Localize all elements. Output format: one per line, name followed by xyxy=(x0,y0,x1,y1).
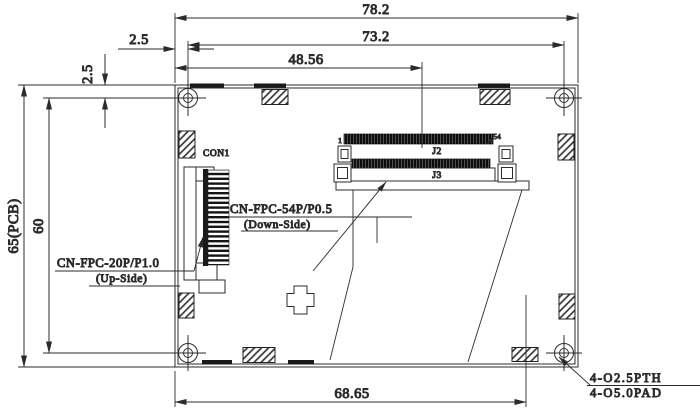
pad-right-lower xyxy=(559,294,575,319)
pad-left-lower xyxy=(179,293,194,318)
dim-pcb-height-value: 65(PCB) xyxy=(6,198,22,253)
drawing-canvas: CON1 J2 1 54 J3 xyxy=(0,0,700,410)
dim-inner-width xyxy=(188,41,564,90)
fpc20-side-label: (Up-Side) xyxy=(96,273,147,285)
pcb-outline xyxy=(175,85,578,367)
hole-note-line2: 4-O5.0PAD xyxy=(590,386,662,400)
j3-label: J3 xyxy=(432,171,441,181)
j2-pin1-label: 1 xyxy=(338,136,342,145)
fpc20-label: CN-FPC-20P/P1.0 xyxy=(57,256,159,270)
fpc54-side-label: (Down-Side) xyxy=(244,219,311,231)
pcb-mechanical-drawing: CON1 J2 1 54 J3 xyxy=(0,0,700,410)
fpc54-label: CN-FPC-54P/P0.5 xyxy=(230,202,332,216)
dim-inner-width-value: 73.2 xyxy=(362,29,389,45)
j2-label: J2 xyxy=(432,147,441,157)
pad-bottom-right xyxy=(512,348,538,362)
hole-note-line1: 4-O2.5PTH xyxy=(590,371,662,385)
pad-top-left xyxy=(262,90,288,105)
pad-bottom-left xyxy=(243,348,275,363)
dim-offset-vertical-value: 2.5 xyxy=(80,64,96,84)
j2-pin54-label: 54 xyxy=(493,132,501,141)
pad-left-upper xyxy=(179,131,195,158)
pad-right-upper xyxy=(558,134,574,160)
dim-top-width xyxy=(175,13,578,83)
pad-top-right xyxy=(480,90,510,105)
con1-label: CON1 xyxy=(203,149,230,159)
dim-j2-offset-value: 48.56 xyxy=(288,52,323,68)
dim-bottom-width-value: 68.65 xyxy=(334,386,369,402)
dim-top-width-value: 78.2 xyxy=(362,2,389,18)
dim-offset-horizontal-value: 2.5 xyxy=(129,32,149,48)
dim-inner-height-value: 60 xyxy=(31,218,47,234)
